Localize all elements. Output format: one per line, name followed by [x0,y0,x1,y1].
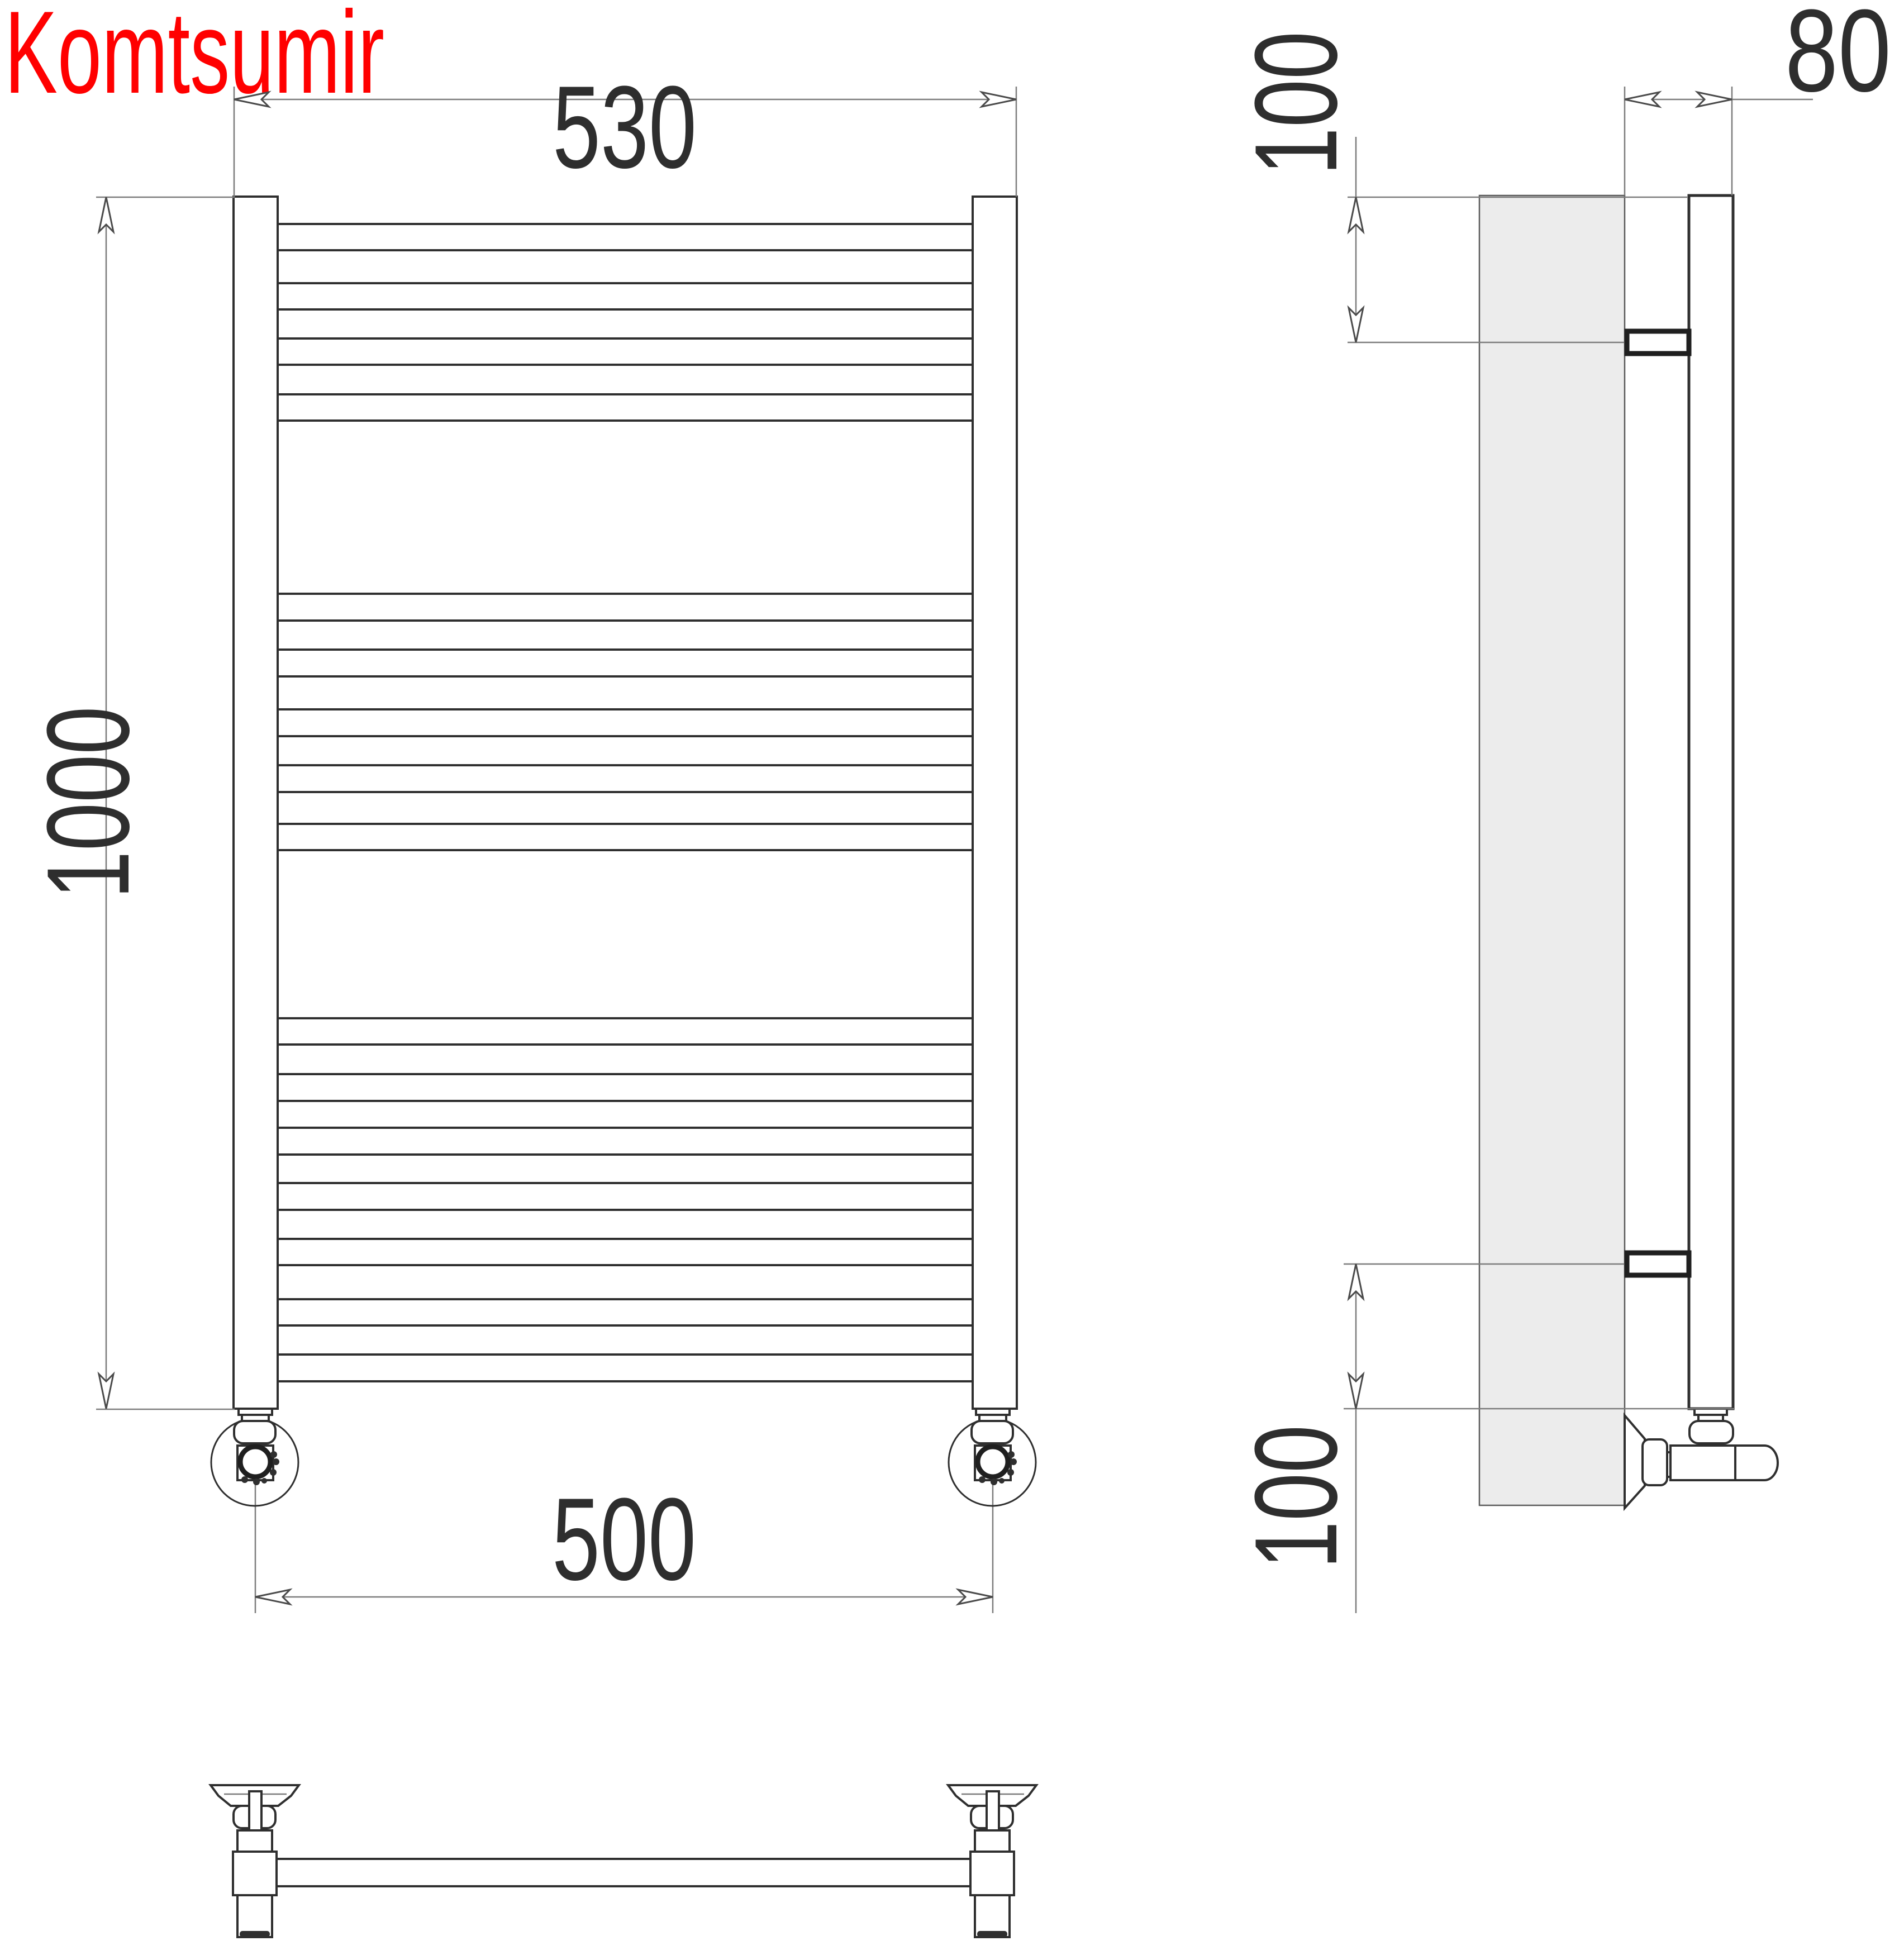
dimension-text-100-top: 100 [1230,31,1362,175]
rung [278,224,973,250]
dimension-text-80: 80 [1785,0,1891,116]
rung [278,709,973,736]
side-view [1344,195,1778,1508]
left-post [234,197,278,1409]
dimension-text-500: 500 [552,1473,696,1605]
bottom-bracket [1627,1253,1689,1275]
dimension-text-1000: 1000 [22,707,154,899]
rung [278,1128,973,1155]
front-view [211,197,1036,1613]
top-bracket [1627,331,1689,354]
side-valve [1625,1409,1778,1508]
dimension-overall-height: 1000 [22,197,235,1409]
side-valve-tee-body [1670,1446,1735,1480]
rung [278,824,973,850]
wall [1479,195,1625,1505]
rung [278,1299,973,1325]
bottom-view [211,1785,1036,1937]
dimension-connection-spacing: 500 [255,1473,993,1605]
rung [278,1355,973,1381]
towel-rail-technical-drawing: Komtsumir [0,0,1904,1941]
brand-logo-text: Komtsumir [4,0,384,118]
rung [278,650,973,676]
rung [278,1018,973,1045]
drawing-canvas: Komtsumir [0,0,1904,1941]
side-valve-nut [1689,1421,1733,1443]
rung [278,594,973,621]
bottom-view-rail-bar [277,1859,970,1886]
rung [278,283,973,309]
rung [278,1183,973,1210]
side-valve-cap [1735,1446,1778,1480]
right-post [973,197,1017,1409]
dimension-text-530: 530 [553,61,697,193]
rung [278,765,973,792]
front-right-valve [949,1409,1036,1613]
rung [278,1239,973,1265]
front-left-valve [211,1409,298,1613]
side-valve-wall-nut [1643,1439,1667,1485]
side-post-pipe [1689,195,1733,1409]
rung [278,338,973,365]
rung [278,394,973,421]
dimension-wall-offset: 80 [1625,0,1891,195]
dimension-text-100-bottom: 100 [1230,1425,1362,1569]
rung [278,1074,973,1101]
